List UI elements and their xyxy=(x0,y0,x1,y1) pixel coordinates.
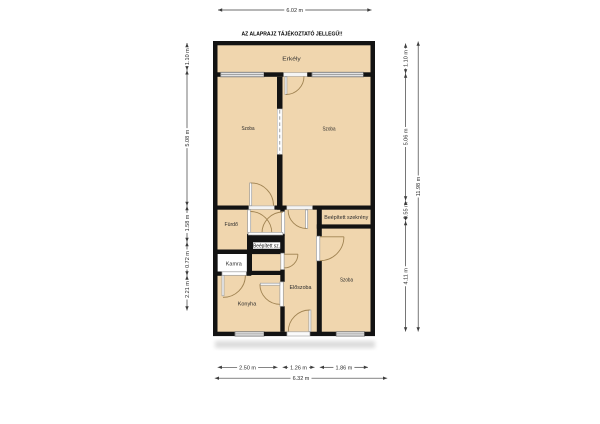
svg-text:5.08 m: 5.08 m xyxy=(185,129,191,146)
svg-text:1.58 m: 1.58 m xyxy=(185,214,191,231)
svg-text:1.86 m: 1.86 m xyxy=(335,365,352,371)
svg-text:Erkély: Erkély xyxy=(282,57,301,63)
svg-text:Beépített szekrény: Beépített szekrény xyxy=(324,215,368,221)
svg-text:6.02 m: 6.02 m xyxy=(286,8,303,14)
svg-text:0.72 m: 0.72 m xyxy=(185,251,191,268)
svg-text:11.98 m: 11.98 m xyxy=(416,176,422,196)
svg-text:1.10 m: 1.10 m xyxy=(185,48,191,65)
svg-text:AZ ALAPRAJZ TÁJÉKOZTATÓ JELLEG: AZ ALAPRAJZ TÁJÉKOZTATÓ JELLEGŰ!! xyxy=(242,30,343,38)
svg-text:Kamra: Kamra xyxy=(226,261,243,267)
svg-text:6.32 m: 6.32 m xyxy=(293,376,310,382)
svg-text:Szoba: Szoba xyxy=(242,126,256,132)
svg-text:Fürdő: Fürdő xyxy=(224,222,238,228)
svg-text:1.26 m: 1.26 m xyxy=(290,365,307,371)
svg-text:0.55 m: 0.55 m xyxy=(403,202,409,219)
svg-text:1.10 m: 1.10 m xyxy=(403,50,409,67)
svg-text:4.11 m: 4.11 m xyxy=(403,268,409,285)
svg-text:2.21 m: 2.21 m xyxy=(185,281,191,298)
svg-text:Konyha: Konyha xyxy=(238,302,257,308)
svg-text:5.06 m: 5.06 m xyxy=(403,128,409,145)
svg-text:Szoba: Szoba xyxy=(340,278,354,284)
svg-text:2.50 m: 2.50 m xyxy=(239,365,256,371)
svg-text:Szoba: Szoba xyxy=(323,127,337,133)
svg-text:Beépített sz.: Beépített sz. xyxy=(253,244,280,250)
svg-text:Előszoba: Előszoba xyxy=(290,285,313,291)
